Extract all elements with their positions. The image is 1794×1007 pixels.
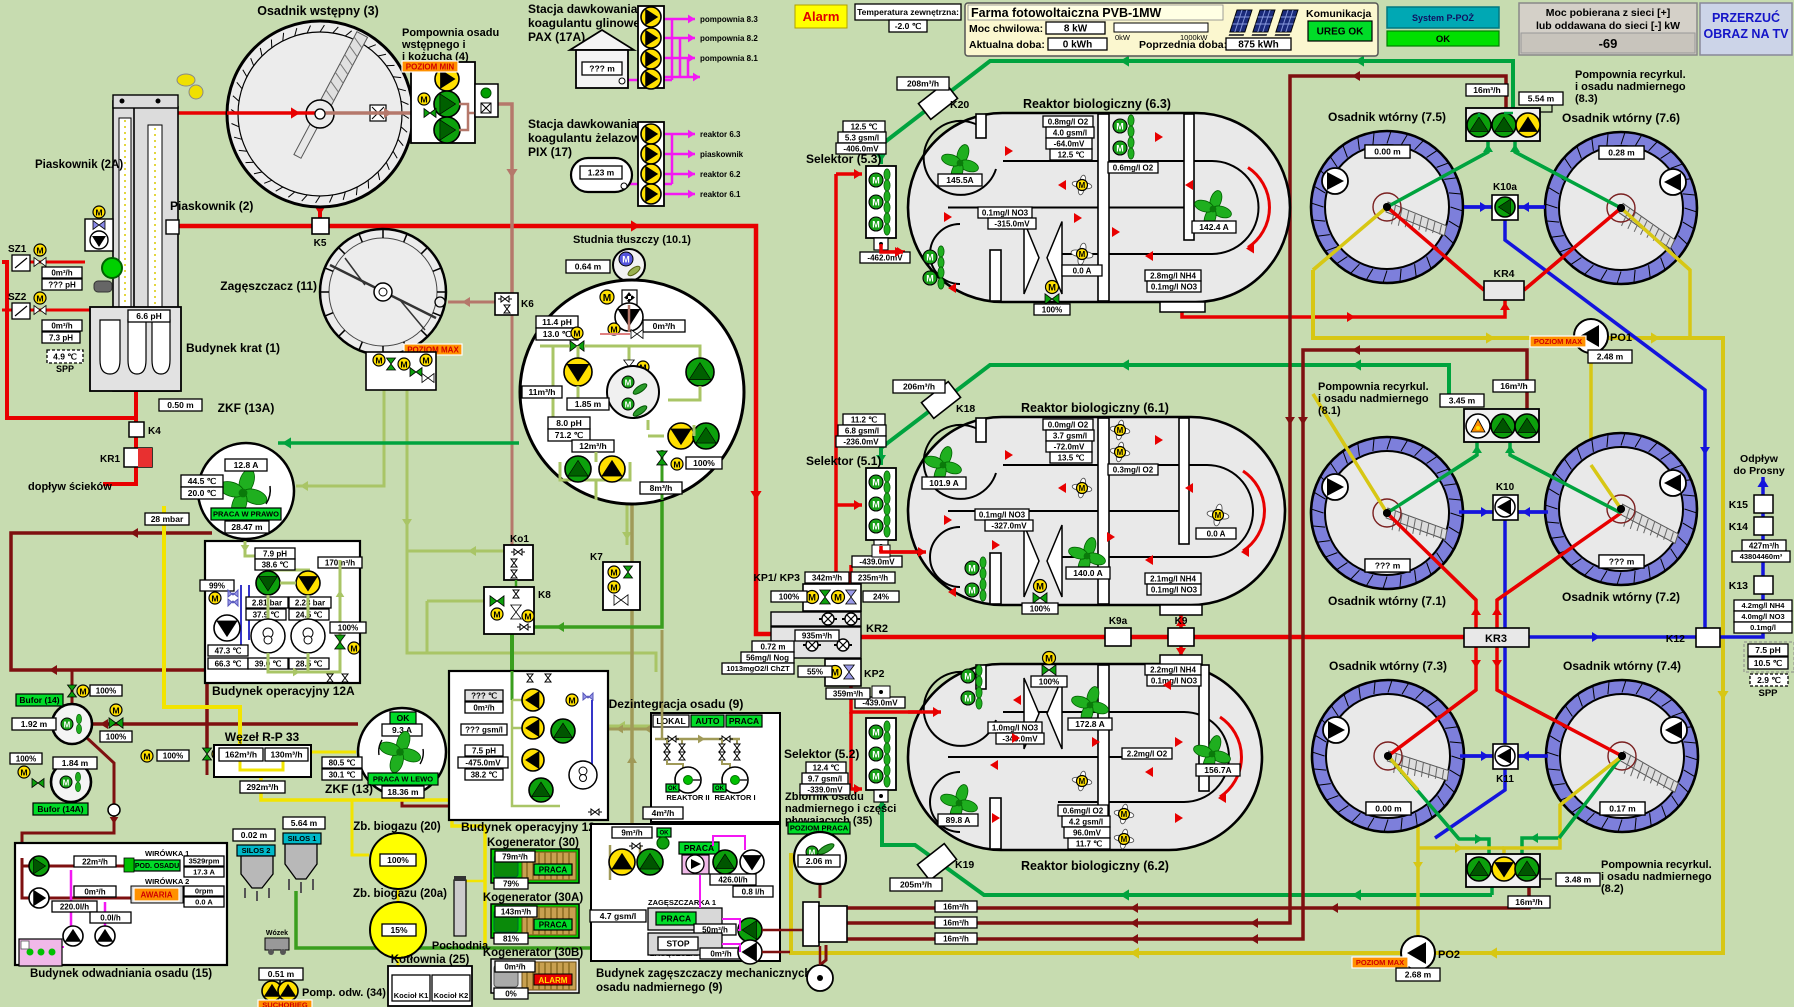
- svg-text:K5: K5: [314, 238, 327, 249]
- svg-text:156.7A: 156.7A: [1204, 765, 1231, 775]
- svg-text:71.2 ℃: 71.2 ℃: [555, 430, 584, 440]
- svg-text:11m³/h: 11m³/h: [529, 387, 556, 397]
- svg-text:??? ℃: ??? ℃: [471, 691, 497, 700]
- svg-text:292m³/h: 292m³/h: [246, 782, 278, 792]
- svg-text:KR2: KR2: [866, 623, 888, 635]
- svg-text:Odpływ: Odpływ: [1740, 453, 1779, 465]
- svg-text:2.2mg/l O2: 2.2mg/l O2: [1127, 749, 1168, 758]
- svg-text:pompownia 8.1: pompownia 8.1: [700, 54, 758, 63]
- svg-text:K11: K11: [1496, 774, 1514, 785]
- svg-text:100%: 100%: [16, 754, 36, 763]
- svg-text:M: M: [1079, 484, 1086, 493]
- svg-text:100%: 100%: [387, 855, 409, 865]
- svg-text:1.92 m: 1.92 m: [21, 719, 48, 729]
- svg-text:Wózek: Wózek: [266, 930, 288, 937]
- svg-text:935m³/h: 935m³/h: [802, 631, 832, 640]
- svg-text:Zb. biogazu (20): Zb. biogazu (20): [353, 821, 441, 833]
- svg-text:Osadnik wtórny (7.1): Osadnik wtórny (7.1): [1328, 594, 1446, 608]
- svg-text:M: M: [1079, 181, 1086, 190]
- svg-text:REAKTOR II: REAKTOR II: [666, 793, 709, 802]
- svg-text:??? gsm/l: ??? gsm/l: [465, 725, 503, 734]
- svg-text:POZIOM MIN: POZIOM MIN: [406, 62, 455, 71]
- svg-text:1.0mg/l NO3: 1.0mg/l NO3: [992, 723, 1039, 732]
- svg-text:SILOS 2: SILOS 2: [242, 846, 271, 855]
- svg-text:1.23 m: 1.23 m: [588, 168, 615, 178]
- svg-text:0.50 m: 0.50 m: [167, 400, 194, 410]
- svg-text:OBRAZ NA TV: OBRAZ NA TV: [1704, 27, 1790, 41]
- svg-text:16m³/h: 16m³/h: [943, 934, 969, 943]
- svg-text:M: M: [872, 521, 880, 531]
- svg-text:7.9 pH: 7.9 pH: [263, 549, 287, 558]
- svg-text:0.28 m: 0.28 m: [1608, 148, 1635, 158]
- svg-text:2.1mg/l NH4: 2.1mg/l NH4: [1150, 574, 1196, 583]
- svg-text:0.51 m: 0.51 m: [268, 969, 295, 979]
- svg-text:Pompownia recyrkul.: Pompownia recyrkul.: [1575, 69, 1686, 81]
- svg-text:Temperatura zewnętrzna:: Temperatura zewnętrzna:: [857, 7, 959, 17]
- svg-text:17.3 A: 17.3 A: [193, 868, 215, 877]
- svg-text:6.8 gsm/l: 6.8 gsm/l: [845, 426, 879, 435]
- svg-text:M: M: [926, 273, 934, 283]
- svg-text:-439.0mV: -439.0mV: [859, 557, 895, 566]
- svg-text:Farma fotowoltaiczna PVB-1MW: Farma fotowoltaiczna PVB-1MW: [971, 6, 1161, 20]
- svg-text:16m³/h: 16m³/h: [1500, 381, 1527, 391]
- svg-text:ZKF (13A): ZKF (13A): [218, 401, 275, 415]
- svg-text:Kotłownia (25): Kotłownia (25): [391, 954, 470, 966]
- svg-text:M: M: [625, 378, 632, 387]
- svg-text:KP1/ KP3: KP1/ KP3: [753, 572, 800, 584]
- svg-text:Stacja dawkowania: Stacja dawkowania: [528, 117, 638, 131]
- svg-text:24%: 24%: [873, 592, 889, 601]
- svg-text:7.3 pH: 7.3 pH: [49, 333, 73, 342]
- svg-text:PO1: PO1: [1610, 332, 1632, 344]
- svg-text:M: M: [872, 197, 880, 207]
- svg-text:140.0 A: 140.0 A: [1073, 568, 1102, 578]
- svg-text:(8.1): (8.1): [1318, 405, 1341, 417]
- svg-text:0m³/h: 0m³/h: [84, 887, 105, 896]
- svg-text:2.48 m: 2.48 m: [1597, 352, 1624, 362]
- svg-text:0.1mg/l NO3: 0.1mg/l NO3: [1151, 282, 1198, 291]
- svg-text:??? m: ??? m: [1609, 557, 1635, 567]
- svg-text:12.8 A: 12.8 A: [234, 460, 259, 470]
- svg-text:Kogenerator (30B): Kogenerator (30B): [483, 947, 583, 959]
- svg-text:M: M: [1215, 511, 1222, 520]
- svg-text:-2.0 ℃: -2.0 ℃: [895, 21, 922, 31]
- svg-text:K7: K7: [590, 552, 603, 563]
- svg-text:System P-POŻ: System P-POŻ: [1412, 13, 1475, 23]
- svg-text:Osadnik wtórny (7.4): Osadnik wtórny (7.4): [1563, 659, 1681, 673]
- svg-text:pompownia 8.2: pompownia 8.2: [700, 34, 758, 43]
- svg-text:M: M: [872, 477, 880, 487]
- svg-text:0.17 m: 0.17 m: [1609, 804, 1636, 814]
- svg-text:235m³/h: 235m³/h: [858, 573, 888, 582]
- svg-text:M: M: [20, 767, 27, 777]
- svg-text:342m³/h: 342m³/h: [812, 573, 842, 582]
- svg-text:OK: OK: [668, 786, 678, 792]
- svg-text:Moc pobierana z sieci [+]: Moc pobierana z sieci [+]: [1546, 7, 1671, 19]
- svg-text:101.9 A: 101.9 A: [929, 478, 958, 488]
- svg-text:??? m: ??? m: [589, 64, 615, 74]
- svg-text:M: M: [400, 359, 407, 369]
- svg-text:K10a: K10a: [1493, 182, 1517, 193]
- svg-text:47.3 ℃: 47.3 ℃: [215, 646, 242, 655]
- svg-text:M: M: [36, 245, 43, 255]
- svg-text:0m³/h: 0m³/h: [51, 321, 72, 330]
- svg-text:100%: 100%: [163, 751, 183, 760]
- svg-text:OK: OK: [1436, 34, 1450, 45]
- svg-text:206m³/h: 206m³/h: [903, 382, 935, 392]
- svg-text:POD. OSADU: POD. OSADU: [135, 863, 179, 870]
- svg-text:Budynek zagęszczaczy mechanicz: Budynek zagęszczaczy mechanicznych: [596, 968, 811, 980]
- svg-text:koagulantu glinowego: koagulantu glinowego: [528, 16, 655, 30]
- svg-text:0.8mg/l O2: 0.8mg/l O2: [1048, 117, 1089, 126]
- svg-text:K12: K12: [1666, 633, 1685, 645]
- svg-text:UREG OK: UREG OK: [1317, 27, 1364, 38]
- svg-text:2.68 m: 2.68 m: [1405, 970, 1432, 980]
- svg-text:M: M: [610, 567, 617, 577]
- svg-text:nadmiernego i części: nadmiernego i części: [785, 803, 896, 815]
- svg-text:M: M: [1036, 581, 1044, 592]
- svg-text:18.36 m: 18.36 m: [387, 787, 419, 797]
- svg-text:Kogenerator (30A): Kogenerator (30A): [483, 892, 583, 904]
- svg-text:Piaskownik (2): Piaskownik (2): [170, 199, 253, 213]
- svg-text:-339.0mV: -339.0mV: [807, 785, 843, 794]
- svg-text:2.9 ℃: 2.9 ℃: [1757, 675, 1781, 685]
- svg-text:wstępnego i: wstępnego i: [401, 39, 466, 51]
- svg-text:99%: 99%: [209, 581, 225, 590]
- svg-text:66.3 ℃: 66.3 ℃: [215, 659, 242, 668]
- svg-text:reaktor 6.2: reaktor 6.2: [700, 170, 741, 179]
- svg-text:38.6 ℃: 38.6 ℃: [262, 560, 289, 569]
- svg-text:0.64 m: 0.64 m: [575, 262, 602, 272]
- svg-text:POZIOM MAX: POZIOM MAX: [1356, 958, 1404, 967]
- svg-text:SPP: SPP: [1758, 688, 1778, 699]
- svg-text:Reaktor biologiczny (6.3): Reaktor biologiczny (6.3): [1023, 97, 1171, 111]
- svg-text:0.0 A: 0.0 A: [195, 898, 213, 907]
- svg-text:Komunikacja: Komunikacja: [1306, 8, 1372, 20]
- svg-text:20.0 ℃: 20.0 ℃: [188, 488, 217, 498]
- svg-text:8 kW: 8 kW: [1064, 24, 1088, 35]
- svg-text:M: M: [350, 643, 357, 653]
- svg-text:M: M: [808, 592, 816, 603]
- svg-text:0m³/h: 0m³/h: [653, 321, 676, 331]
- svg-text:KP2: KP2: [864, 668, 885, 680]
- svg-text:30.1 ℃: 30.1 ℃: [329, 770, 356, 779]
- svg-text:K6: K6: [521, 299, 534, 310]
- svg-text:7.5 pH: 7.5 pH: [472, 746, 496, 755]
- svg-text:12.5 ℃: 12.5 ℃: [1058, 150, 1085, 159]
- svg-text:8.0 pH: 8.0 pH: [556, 418, 582, 428]
- svg-text:M: M: [1079, 250, 1086, 259]
- svg-text:-475.0mV: -475.0mV: [465, 758, 501, 767]
- svg-text:143m³/h: 143m³/h: [501, 907, 531, 916]
- svg-text:100%: 100%: [693, 458, 715, 468]
- svg-text:WIRÓWKA 1: WIRÓWKA 1: [145, 849, 189, 858]
- svg-text:-236.0mV: -236.0mV: [843, 437, 879, 446]
- svg-text:0.0l/h: 0.0l/h: [100, 913, 121, 922]
- svg-text:6.6 pH: 6.6 pH: [136, 311, 162, 321]
- svg-text:PRACA: PRACA: [539, 920, 568, 929]
- svg-text:56mg/l Nog: 56mg/l Nog: [746, 653, 789, 662]
- svg-text:0m³/h: 0m³/h: [710, 949, 731, 958]
- svg-text:M: M: [926, 252, 934, 262]
- svg-text:0.1mg/l NO3: 0.1mg/l NO3: [979, 510, 1026, 519]
- svg-text:do Prosny: do Prosny: [1733, 465, 1785, 477]
- svg-text:Zagęszczacz (11): Zagęszczacz (11): [220, 279, 317, 293]
- svg-text:Stacja dawkowania: Stacja dawkowania: [528, 2, 638, 16]
- svg-text:0.3mg/l O2: 0.3mg/l O2: [1113, 465, 1154, 474]
- svg-text:2.06 m: 2.06 m: [806, 856, 833, 866]
- svg-text:0.02 m: 0.02 m: [241, 830, 268, 840]
- svg-text:AUTO: AUTO: [696, 716, 720, 726]
- svg-text:-315.0mV: -315.0mV: [994, 219, 1030, 228]
- svg-text:M: M: [375, 355, 382, 365]
- svg-text:0m³/h: 0m³/h: [51, 268, 72, 277]
- svg-text:i osadu nadmiernego: i osadu nadmiernego: [1575, 81, 1686, 93]
- svg-text:100%: 100%: [1042, 305, 1062, 314]
- svg-text:reaktor 6.3: reaktor 6.3: [700, 130, 741, 139]
- svg-text:M: M: [422, 355, 429, 365]
- svg-text:Pomp. odw. (34): Pomp. odw. (34): [302, 987, 386, 999]
- svg-text:7.5 pH: 7.5 pH: [1755, 645, 1781, 655]
- svg-text:M: M: [1121, 810, 1128, 819]
- svg-text:K20: K20: [950, 99, 969, 111]
- svg-text:Ko1: Ko1: [510, 534, 529, 545]
- svg-text:KR3: KR3: [1485, 633, 1507, 645]
- svg-text:WIRÓWKA 2: WIRÓWKA 2: [145, 877, 189, 886]
- svg-text:Budynek odwadniania osadu (15): Budynek odwadniania osadu (15): [30, 968, 212, 980]
- svg-text:PRACA: PRACA: [684, 843, 714, 853]
- svg-text:11.2 ℃: 11.2 ℃: [851, 415, 877, 424]
- svg-text:875 kWh: 875 kWh: [1238, 40, 1279, 51]
- svg-text:dopływ ścieków: dopływ ścieków: [28, 481, 112, 493]
- svg-text:M: M: [834, 592, 842, 603]
- svg-text:3529rpm: 3529rpm: [189, 857, 220, 866]
- svg-text:-64.0mV: -64.0mV: [1054, 139, 1085, 148]
- svg-text:100%: 100%: [1030, 604, 1050, 613]
- svg-text:100%: 100%: [338, 623, 358, 632]
- svg-text:M: M: [211, 593, 218, 603]
- svg-text:M: M: [1121, 835, 1128, 844]
- svg-text:Osadnik wstępny (3): Osadnik wstępny (3): [257, 4, 379, 18]
- svg-text:0.0mg/l O2: 0.0mg/l O2: [1048, 420, 1089, 429]
- svg-text:16m³/h: 16m³/h: [943, 902, 969, 911]
- svg-text:K9: K9: [1175, 616, 1188, 627]
- svg-text:11.7 ℃: 11.7 ℃: [1076, 839, 1102, 848]
- svg-text:0.00 m: 0.00 m: [1374, 147, 1401, 157]
- svg-text:130m³/h: 130m³/h: [270, 750, 302, 760]
- svg-text:Osadnik wtórny (7.5): Osadnik wtórny (7.5): [1328, 110, 1446, 124]
- svg-text:0m³/h: 0m³/h: [504, 962, 525, 971]
- svg-text:2.8mg/l NH4: 2.8mg/l NH4: [1150, 271, 1196, 280]
- svg-text:SUCHOBIEG: SUCHOBIEG: [262, 1001, 308, 1007]
- svg-text:28 mbar: 28 mbar: [151, 514, 184, 524]
- svg-text:100%: 100%: [96, 686, 116, 695]
- svg-text:0.72 m: 0.72 m: [761, 642, 786, 651]
- svg-text:-439.0mV: -439.0mV: [862, 698, 898, 707]
- svg-text:13.0 ℃: 13.0 ℃: [543, 329, 572, 339]
- svg-text:M: M: [872, 771, 880, 781]
- svg-text:M: M: [95, 207, 102, 217]
- svg-text:81%: 81%: [503, 934, 519, 943]
- svg-text:5.64 m: 5.64 m: [291, 818, 318, 828]
- svg-text:9.7 gsm/l: 9.7 gsm/l: [808, 774, 842, 783]
- svg-text:205m³/h: 205m³/h: [900, 880, 932, 890]
- svg-text:M: M: [610, 582, 617, 592]
- svg-text:4.7 gsm/l: 4.7 gsm/l: [600, 911, 636, 921]
- svg-text:??? pH: ??? pH: [48, 280, 76, 289]
- svg-text:SILOS 1: SILOS 1: [288, 834, 317, 843]
- svg-text:38.2 ℃: 38.2 ℃: [471, 770, 498, 779]
- svg-text:M: M: [964, 693, 972, 703]
- svg-text:M: M: [610, 324, 617, 334]
- svg-text:REAKTOR I: REAKTOR I: [714, 793, 755, 802]
- svg-text:ALARM: ALARM: [539, 976, 568, 985]
- svg-text:5.54 m: 5.54 m: [1528, 94, 1555, 104]
- svg-text:0m³/h: 0m³/h: [473, 703, 494, 712]
- svg-text:M: M: [143, 751, 150, 761]
- svg-text:Bufor (14A): Bufor (14A): [37, 804, 83, 814]
- svg-text:Pompownia recyrkul.: Pompownia recyrkul.: [1318, 381, 1429, 393]
- svg-text:Bufor (14): Bufor (14): [19, 695, 59, 705]
- svg-text:220.0l/h: 220.0l/h: [60, 902, 89, 911]
- svg-text:K10: K10: [1496, 482, 1515, 493]
- svg-text:Poprzednia doba:: Poprzednia doba:: [1139, 39, 1227, 51]
- svg-text:PRACA: PRACA: [539, 865, 568, 874]
- svg-text:M: M: [1117, 448, 1124, 457]
- svg-text:Pompownia osadu: Pompownia osadu: [402, 27, 499, 39]
- svg-text:piaskownik: piaskownik: [700, 150, 744, 159]
- svg-text:16m³/h: 16m³/h: [1473, 85, 1500, 95]
- svg-text:M: M: [1116, 143, 1124, 153]
- svg-text:22m³/h: 22m³/h: [82, 857, 108, 866]
- svg-text:osadu nadmiernego (9): osadu nadmiernego (9): [596, 982, 723, 994]
- svg-text:0.8 l/h: 0.8 l/h: [742, 887, 765, 896]
- svg-text:PAX (17A): PAX (17A): [528, 30, 585, 44]
- svg-text:Osadnik wtórny (7.2): Osadnik wtórny (7.2): [1562, 590, 1680, 604]
- svg-text:-69: -69: [1599, 36, 1618, 51]
- svg-text:16m³/h: 16m³/h: [943, 918, 969, 927]
- svg-text:12m³/h: 12m³/h: [579, 441, 606, 451]
- svg-text:i osadu nadmiernego: i osadu nadmiernego: [1601, 871, 1712, 883]
- svg-text:Selektor (5.3): Selektor (5.3): [806, 152, 881, 166]
- svg-text:100%: 100%: [1039, 677, 1059, 686]
- svg-text:1.85 m: 1.85 m: [575, 399, 602, 409]
- svg-text:Węzeł R-P 33: Węzeł R-P 33: [225, 730, 300, 744]
- svg-text:79m³/h: 79m³/h: [502, 852, 528, 861]
- svg-text:PO2: PO2: [1438, 949, 1460, 961]
- svg-text:28.47 m: 28.47 m: [231, 522, 263, 532]
- svg-text:OK: OK: [715, 786, 725, 792]
- svg-text:pompownia 8.3: pompownia 8.3: [700, 15, 758, 24]
- svg-text:4.0mg/l NO3: 4.0mg/l NO3: [1741, 612, 1784, 621]
- svg-text:1013mgO2/l ChZT: 1013mgO2/l ChZT: [726, 664, 790, 673]
- svg-text:80.5 ℃: 80.5 ℃: [329, 758, 356, 767]
- svg-text:1.84 m: 1.84 m: [62, 758, 89, 768]
- svg-text:426.0l/h: 426.0l/h: [718, 875, 747, 884]
- svg-text:Budynek operacyjny 12A: Budynek operacyjny 12A: [212, 684, 355, 698]
- svg-text:172.8 A: 172.8 A: [1075, 719, 1104, 729]
- svg-text:2.2mg/l NH4: 2.2mg/l NH4: [1150, 665, 1196, 674]
- svg-text:10.5 ℃: 10.5 ℃: [1754, 658, 1783, 668]
- svg-text:0.00 m: 0.00 m: [1375, 804, 1402, 814]
- svg-text:Reaktor biologiczny (6.2): Reaktor biologiczny (6.2): [1021, 859, 1169, 873]
- svg-text:Pochodnia: Pochodnia: [432, 940, 489, 952]
- svg-text:(8.2): (8.2): [1601, 883, 1624, 895]
- svg-text:142.4 A: 142.4 A: [1199, 222, 1228, 232]
- svg-text:M: M: [964, 671, 972, 681]
- svg-text:M: M: [1045, 653, 1053, 664]
- svg-text:M: M: [622, 255, 630, 265]
- svg-text:K9a: K9a: [1109, 616, 1128, 627]
- svg-text:-327.0mV: -327.0mV: [991, 521, 1027, 530]
- svg-text:lub oddawana do sieci [-] kW: lub oddawana do sieci [-] kW: [1536, 20, 1680, 32]
- svg-text:M: M: [872, 727, 880, 737]
- svg-text:9m³/h: 9m³/h: [621, 828, 642, 837]
- svg-text:43804460m³: 43804460m³: [1740, 552, 1783, 561]
- svg-text:Budynek operacyjny 12: Budynek operacyjny 12: [461, 820, 595, 834]
- svg-text:15%: 15%: [390, 925, 407, 935]
- svg-text:Pompownia recyrkul.: Pompownia recyrkul.: [1601, 859, 1712, 871]
- svg-text:PIX (17): PIX (17): [528, 145, 572, 159]
- svg-text:M: M: [625, 400, 632, 409]
- svg-text:M: M: [1116, 121, 1124, 131]
- svg-text:96.0mV: 96.0mV: [1073, 828, 1102, 837]
- svg-text:Kocioł K2: Kocioł K2: [434, 991, 469, 1000]
- svg-text:Budynek krat (1): Budynek krat (1): [186, 341, 280, 355]
- svg-text:M: M: [968, 585, 976, 595]
- svg-text:Kogenerator (30): Kogenerator (30): [487, 837, 579, 849]
- svg-text:PRACA: PRACA: [661, 914, 691, 924]
- svg-text:M: M: [573, 328, 580, 338]
- svg-text:M: M: [872, 749, 880, 759]
- svg-text:M: M: [603, 293, 611, 304]
- svg-text:Piaskownik (2A): Piaskownik (2A): [35, 159, 123, 171]
- svg-text:Zb. biogazu (20a): Zb. biogazu (20a): [353, 888, 447, 900]
- svg-text:4m²/h: 4m²/h: [652, 808, 675, 818]
- svg-text:M: M: [872, 219, 880, 229]
- svg-text:PRACA W LEWO: PRACA W LEWO: [373, 775, 433, 784]
- svg-text:M: M: [1117, 426, 1124, 435]
- svg-text:K8: K8: [538, 590, 551, 601]
- svg-text:K13: K13: [1729, 580, 1748, 592]
- svg-text:K15: K15: [1729, 499, 1748, 511]
- svg-text:K19: K19: [955, 859, 974, 871]
- svg-text:12.5 ℃: 12.5 ℃: [851, 122, 878, 131]
- svg-text:Dezintegracja osadu (9): Dezintegracja osadu (9): [609, 697, 744, 711]
- svg-text:100%: 100%: [779, 592, 799, 601]
- svg-text:i osadu nadmiernego: i osadu nadmiernego: [1318, 393, 1429, 405]
- svg-text:Alarm: Alarm: [803, 9, 840, 24]
- svg-text:K14: K14: [1729, 521, 1748, 533]
- svg-text:0.1mg/l NO3: 0.1mg/l NO3: [982, 208, 1029, 217]
- svg-text:11.4 pH: 11.4 pH: [542, 317, 572, 327]
- svg-text:PRZERZUĆ: PRZERZUĆ: [1712, 10, 1780, 25]
- svg-text:M: M: [79, 686, 86, 696]
- svg-text:3.45 m: 3.45 m: [1449, 396, 1476, 406]
- svg-text:SZ1: SZ1: [8, 244, 27, 255]
- svg-text:162m³/h: 162m³/h: [225, 750, 257, 760]
- svg-text:-72.0mV: -72.0mV: [1054, 442, 1085, 451]
- svg-text:8m³/h: 8m³/h: [650, 483, 673, 493]
- svg-text:5.3 gsm/l: 5.3 gsm/l: [845, 133, 879, 142]
- svg-text:4.9 ℃: 4.9 ℃: [53, 352, 77, 362]
- svg-text:208m³/h: 208m³/h: [907, 79, 939, 89]
- svg-text:Aktualna doba:: Aktualna doba:: [969, 39, 1045, 51]
- svg-text:Selektor (5.1): Selektor (5.1): [806, 454, 881, 468]
- svg-text:SZ2: SZ2: [8, 292, 27, 303]
- svg-text:0.1mg/l: 0.1mg/l: [1750, 623, 1776, 632]
- svg-text:M: M: [872, 499, 880, 509]
